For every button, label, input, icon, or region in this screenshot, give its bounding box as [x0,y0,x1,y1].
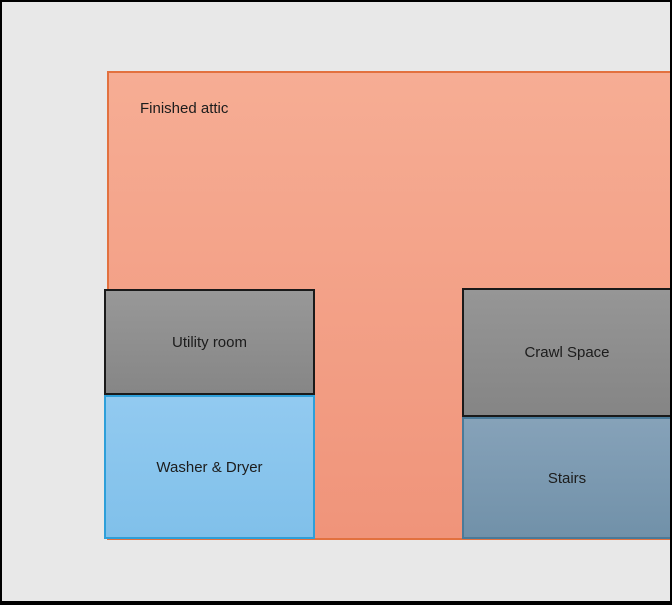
room-label-finished-attic: Finished attic [140,100,228,117]
floor-plan-canvas: Finished attic Utility room Washer & Dry… [0,0,672,605]
room-crawl-space: Crawl Space [462,288,672,417]
room-stairs: Stairs [462,417,672,539]
room-label-stairs: Stairs [548,470,586,487]
room-label-washer-dryer: Washer & Dryer [156,459,262,476]
room-utility-room: Utility room [104,289,315,395]
room-label-utility-room: Utility room [172,334,247,351]
room-washer-dryer: Washer & Dryer [104,395,315,539]
room-label-crawl-space: Crawl Space [524,344,609,361]
